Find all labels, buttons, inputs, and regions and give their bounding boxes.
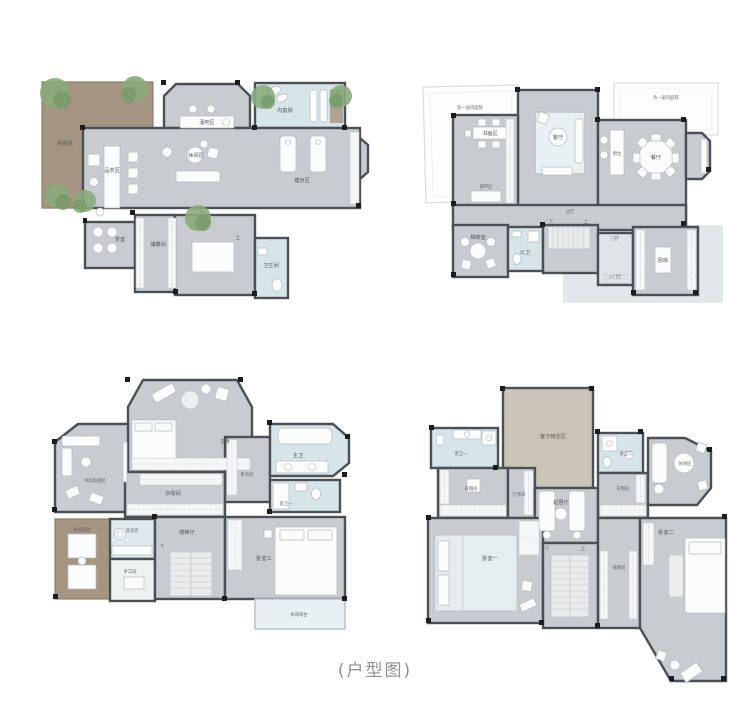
label-hall: 门厅: [611, 235, 620, 242]
label-gym-area: 健身区: [294, 176, 310, 184]
label-kitchen: 厨房: [658, 256, 668, 264]
label-lounge-area: 休闲区: [188, 151, 204, 159]
label-pool-courtyard: 内庭院: [277, 106, 293, 114]
label-sitting-room: 起居厅: [553, 499, 569, 506]
label-bedroom-three: 卧室三: [256, 554, 272, 562]
label-stair-up: 上: [581, 545, 586, 552]
label-terrace: 休闲露台: [73, 526, 90, 533]
label-dressing-room: 更衣间: [241, 471, 254, 478]
label-closet-left: 衣帽间: [465, 485, 478, 492]
label-balcony: 休闲阳台: [290, 611, 307, 618]
label-foyer: 入门厅: [609, 273, 623, 280]
label-bath-one: 客卫一: [455, 450, 469, 457]
label-corridor: 过厅: [566, 208, 575, 215]
label-storage-room: 储物间: [613, 564, 626, 571]
label-courtyard-left: 内庭院: [57, 139, 73, 147]
label-bedroom-one: 卧室一: [482, 554, 498, 562]
label-guest-bath: 公卫: [520, 249, 530, 256]
label-stair-down: 下: [545, 546, 550, 552]
floorplan-basement: 内庭院 内庭院 酒吧区 品茶区 休闲区 健身区 茶室 储藏间 卫生间 上: [30, 60, 370, 310]
label-stair-down: 下: [160, 544, 165, 550]
label-piano-area: 钢琴区: [480, 183, 494, 190]
label-tv-lounge: 休闲电视区: [84, 477, 106, 484]
label-stair-down: 下: [549, 219, 554, 225]
label-bedroom-two: 卧室二: [658, 528, 674, 536]
label-closet: 衣帽间: [165, 489, 181, 497]
label-stair-up: 上: [235, 233, 240, 241]
label-void-right: 负一层内庭院: [653, 94, 679, 101]
label-bar-counter: 吧台: [613, 150, 622, 157]
label-void-left: 负一层内庭院: [457, 104, 483, 111]
label-luggage-room: 行李间: [513, 491, 526, 498]
label-craft-room: 手工间: [124, 568, 137, 575]
label-dining-room: 餐厅: [651, 153, 661, 161]
label-living-room: 客厅: [553, 133, 563, 141]
floorplan-sheet: 内庭院 内庭院 酒吧区 品茶区 休闲区 健身区 茶室 储藏间 卫生间 上: [0, 0, 750, 706]
label-bathroom: 卫生间: [263, 261, 279, 269]
label-storage-room: 储藏间: [150, 240, 166, 248]
floorplan-third: 客厅挑空区 客卫一 衣帽间 行李间 起居厅 客卫二 衣帽间 休闲区 卧室一 卧室…: [423, 383, 735, 703]
label-study-area: 书画区: [482, 129, 498, 137]
floorplan-first: 负一层内庭院 负一层内庭院 书画区 客厅 钢琴区 过厅 吧台 餐厅 棋牌室 公卫…: [418, 75, 725, 310]
label-living-void: 客厅挑空区: [540, 432, 566, 440]
label-bath-two: 客卫二: [620, 450, 634, 457]
label-closet-right: 衣帽间: [617, 485, 630, 492]
label-tea-room: 茶室: [115, 235, 125, 243]
label-lounge-area: 休闲区: [679, 460, 693, 467]
label-guest-bath: 客卫一: [280, 500, 294, 507]
label-master-bath: 主卫: [293, 451, 303, 459]
label-master-bedroom: 主卧: [220, 437, 230, 445]
floorplan-second: 主卧 休闲电视区 衣帽间 更衣间 主卫 客卫一 休闲露台 洗衣房 手工间 楼梯厅…: [40, 362, 360, 640]
label-stair-up: 上: [584, 218, 589, 225]
label-bar-area: 酒吧区: [199, 118, 215, 126]
label-mahjong-room: 棋牌室: [470, 233, 486, 241]
label-stair-hall: 楼梯厅: [179, 528, 195, 536]
sheet-caption: (户型图): [0, 656, 750, 681]
label-laundry: 洗衣房: [126, 527, 139, 534]
label-tea-table-area: 品茶区: [104, 166, 120, 174]
